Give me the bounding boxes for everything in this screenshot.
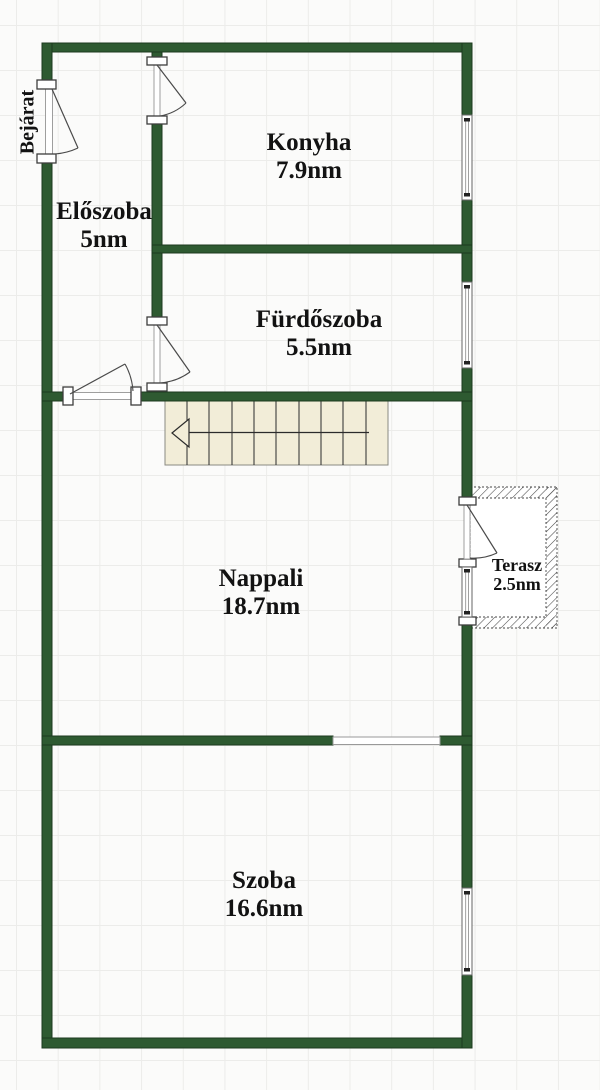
wall-right-seg3 <box>462 368 472 497</box>
wall-nappali-szoba <box>42 736 333 745</box>
room-name: Fürdőszoba <box>256 306 382 333</box>
wall-hall-main <box>140 392 472 401</box>
wall-hall-left-stub <box>42 392 64 401</box>
wall-right-seg4 <box>462 625 472 888</box>
door-furdoszoba <box>147 317 190 391</box>
wall-right-seg5 <box>462 975 472 1048</box>
entrance-label: Bejárat <box>17 90 40 154</box>
room-label-terasz: Terasz 2.5nm <box>492 556 542 594</box>
room-area: 5nm <box>56 226 152 254</box>
window-furdoszoba <box>462 282 472 368</box>
window-konyha <box>462 115 472 200</box>
room-name: Előszoba <box>56 198 152 225</box>
room-area: 7.9nm <box>267 157 352 185</box>
room-area: 5.5nm <box>256 334 382 362</box>
door-entrance <box>37 80 78 163</box>
room-label-eloszoba: Előszoba 5nm <box>56 198 152 254</box>
room-name: Konyha <box>267 129 352 156</box>
wall-top <box>42 43 472 52</box>
door-konyha <box>147 57 186 124</box>
room-area: 16.6nm <box>225 895 303 923</box>
room-label-furdoszoba: Fürdőszoba 5.5nm <box>256 306 382 362</box>
room-label-konyha: Konyha 7.9nm <box>267 129 352 185</box>
staircase <box>165 400 388 465</box>
floor-plan: Bejárat Előszoba 5nm Konyha 7.9nm Fürdős… <box>0 0 600 1090</box>
terrace-hatch-right <box>546 487 557 628</box>
nappali-szoba-opening <box>333 737 440 745</box>
wall-konyha-furdoszoba <box>152 245 472 253</box>
wall-divider-middle <box>152 123 162 318</box>
room-name: Terasz <box>492 555 542 575</box>
wall-left-main <box>42 162 52 1048</box>
room-label-nappali: Nappali 18.7nm <box>219 565 304 621</box>
wall-right-seg2 <box>462 200 472 282</box>
wall-left-above-entrance <box>42 43 52 81</box>
wall-right-seg1 <box>462 43 472 115</box>
room-label-szoba: Szoba 16.6nm <box>225 867 303 923</box>
terrace-hatch-top <box>470 487 557 498</box>
room-name: Szoba <box>232 867 296 894</box>
wall-nappali-szoba-stub <box>440 736 472 745</box>
room-name: Nappali <box>219 565 304 592</box>
wall-bottom <box>42 1038 472 1048</box>
room-area: 18.7nm <box>219 593 304 621</box>
terrace-hatch-bottom <box>470 617 557 628</box>
room-area: 2.5nm <box>492 575 542 594</box>
door-nappali <box>63 364 141 405</box>
window-szoba <box>462 888 472 975</box>
